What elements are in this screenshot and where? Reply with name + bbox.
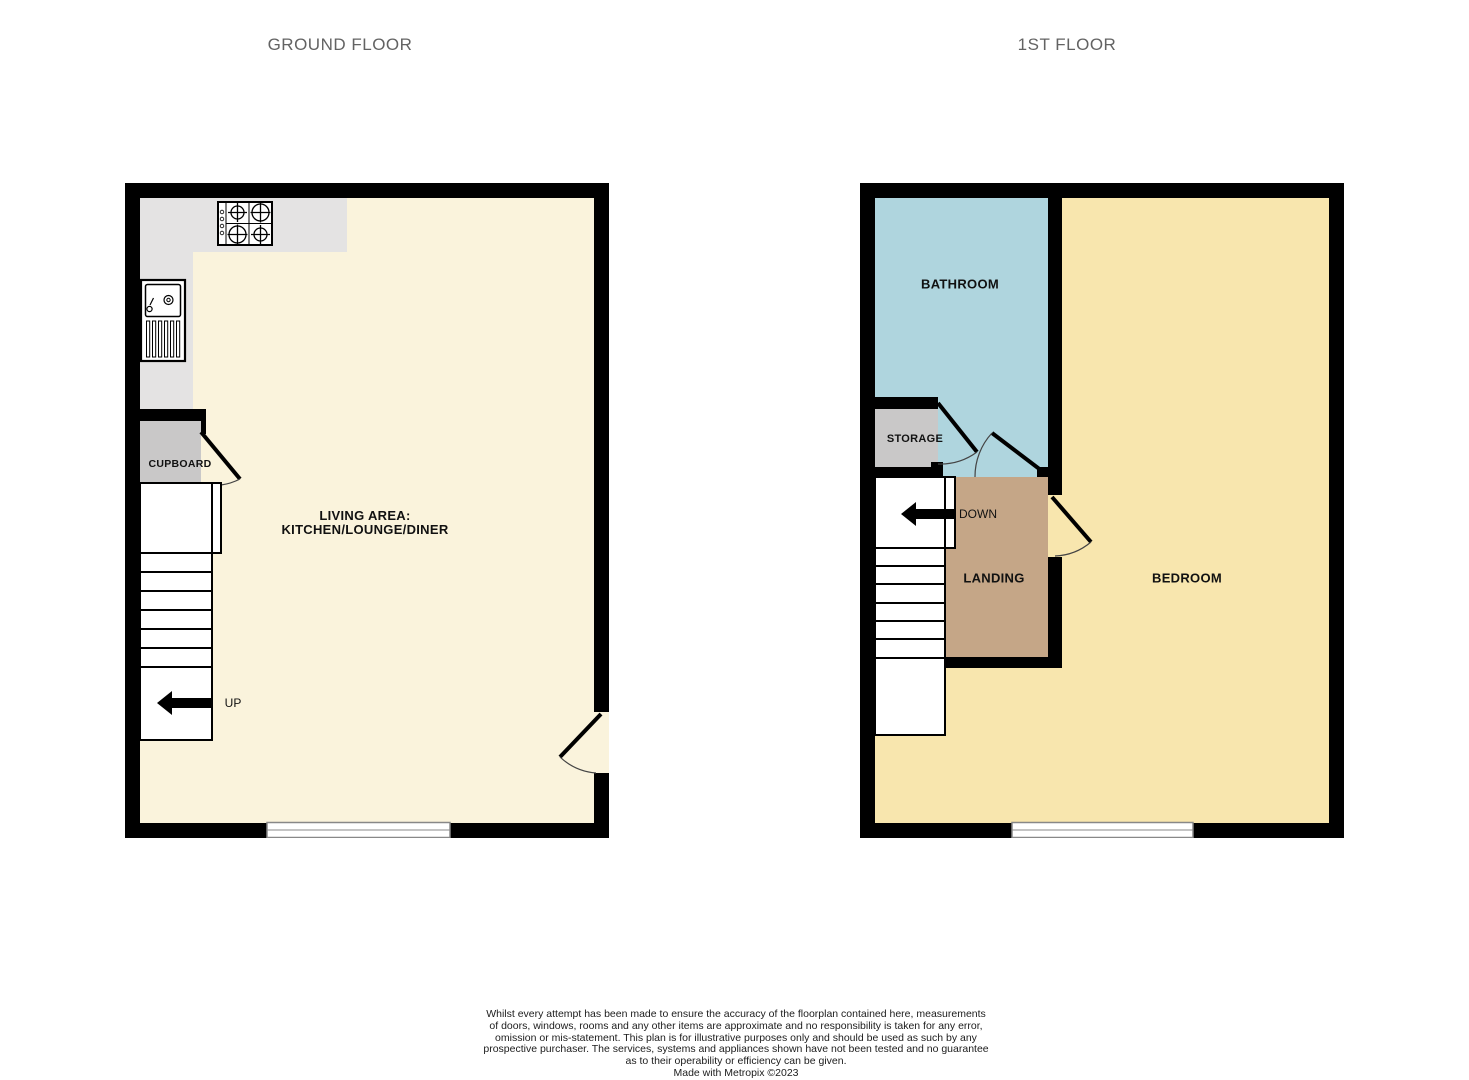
landing-wall-bottom: [943, 657, 1062, 668]
ground-floor-plan: LIVING AREA: KITCHEN/LOUNGE/DINER CUPBOA…: [125, 183, 609, 838]
first-floor-title: 1ST FLOOR: [1018, 35, 1117, 55]
first-window: [1012, 823, 1193, 838]
cupboard-wall: [125, 409, 206, 421]
made-with-credit: Made with Metropix ©2023: [483, 1068, 988, 1080]
floorplan-page: GROUND FLOOR 1ST FLOOR: [0, 0, 1469, 1080]
first-floor-plan: BATHROOM STORAGE DOWN LANDING BEDROOM: [860, 183, 1344, 838]
dividing-wall-upper: [1048, 198, 1062, 495]
disclaimer-text: Whilst every attempt has been made to en…: [483, 1009, 988, 1080]
landing-label: LANDING: [963, 571, 1024, 586]
storage-wall-top: [860, 397, 938, 409]
down-label: DOWN: [959, 507, 997, 521]
ground-window: [267, 823, 450, 838]
up-label: UP: [225, 696, 242, 710]
bathroom-label: BATHROOM: [921, 277, 999, 292]
disclaimer-line: of doors, windows, rooms and any other i…: [483, 1021, 988, 1033]
ground-floor-title: GROUND FLOOR: [268, 35, 413, 55]
stove-icon: [218, 202, 272, 245]
bedroom-label: BEDROOM: [1152, 571, 1222, 586]
cupboard-label: CUPBOARD: [148, 458, 211, 470]
sink-icon: [141, 280, 185, 361]
storage-wall-bottom: [860, 467, 943, 477]
landing-floor: [945, 477, 1048, 657]
dividing-wall-lower: [1048, 557, 1062, 668]
storage-label: STORAGE: [887, 433, 943, 445]
living-area-label: LIVING AREA: KITCHEN/LOUNGE/DINER: [281, 509, 448, 537]
cupboard-floor: [140, 421, 201, 482]
